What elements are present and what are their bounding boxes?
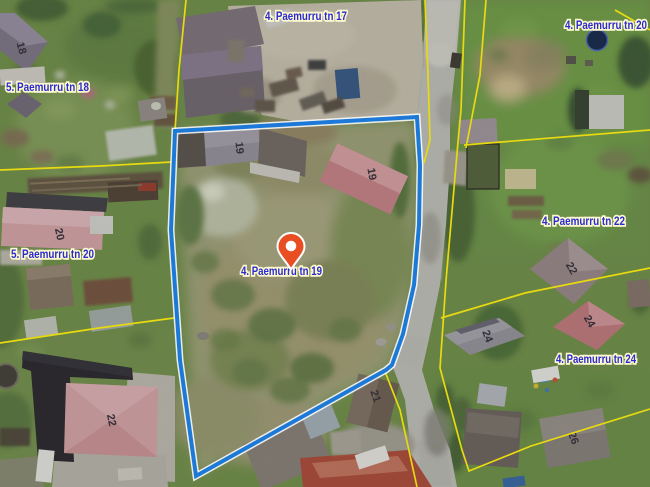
svg-text:4. Paemurru tn 17: 4. Paemurru tn 17 <box>265 9 347 23</box>
svg-text:5. Paemurru tn 18: 5. Paemurru tn 18 <box>6 80 89 94</box>
svg-text:4. Paemurru tn 20: 4. Paemurru tn 20 <box>565 18 647 32</box>
svg-text:4. Paemurru tn 22: 4. Paemurru tn 22 <box>542 214 625 228</box>
svg-text:5. Paemurru tn 20: 5. Paemurru tn 20 <box>11 247 94 261</box>
svg-text:4. Paemurru tn 24: 4. Paemurru tn 24 <box>556 352 636 366</box>
svg-text:4. Paemurru tn 19: 4. Paemurru tn 19 <box>241 264 322 278</box>
